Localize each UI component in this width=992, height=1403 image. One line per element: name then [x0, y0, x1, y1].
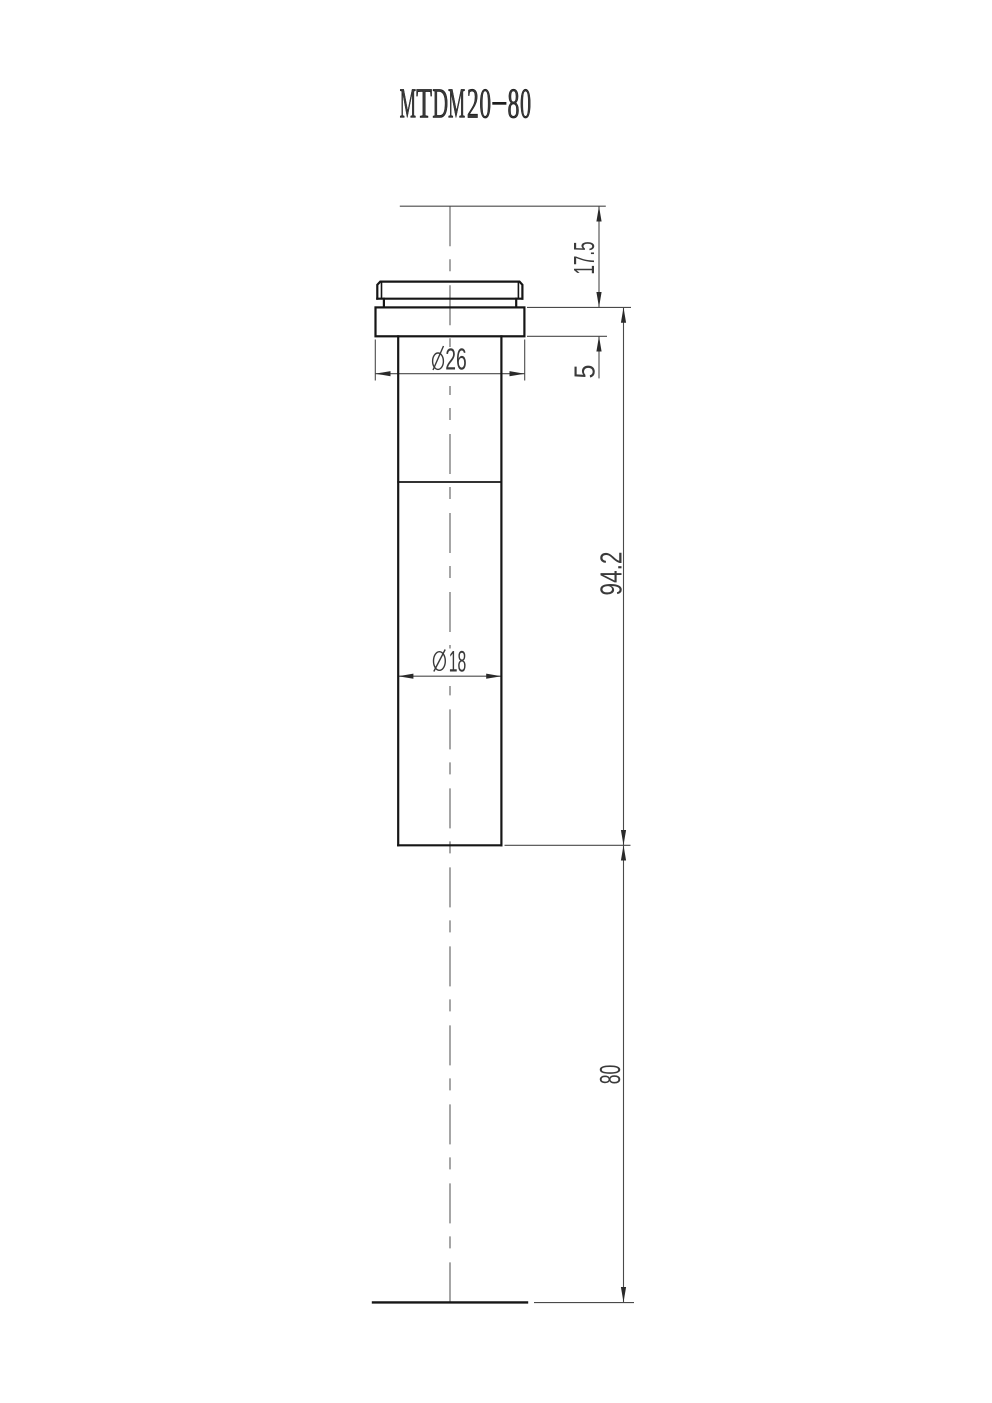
svg-text:D: D — [432, 81, 448, 127]
svg-text:2: 2 — [467, 82, 479, 127]
svg-text:M: M — [448, 81, 465, 127]
svg-text:18: 18 — [449, 645, 467, 678]
svg-text:94.2: 94.2 — [594, 552, 629, 596]
svg-text:T: T — [416, 80, 432, 127]
svg-text:0: 0 — [479, 82, 491, 128]
svg-text:5: 5 — [570, 365, 602, 379]
svg-text:26: 26 — [445, 342, 467, 377]
svg-text:M: M — [400, 81, 416, 128]
svg-text:0: 0 — [520, 81, 531, 127]
svg-text:17.5: 17.5 — [569, 242, 601, 275]
svg-text:80: 80 — [595, 1065, 627, 1085]
svg-text:8: 8 — [508, 82, 520, 127]
